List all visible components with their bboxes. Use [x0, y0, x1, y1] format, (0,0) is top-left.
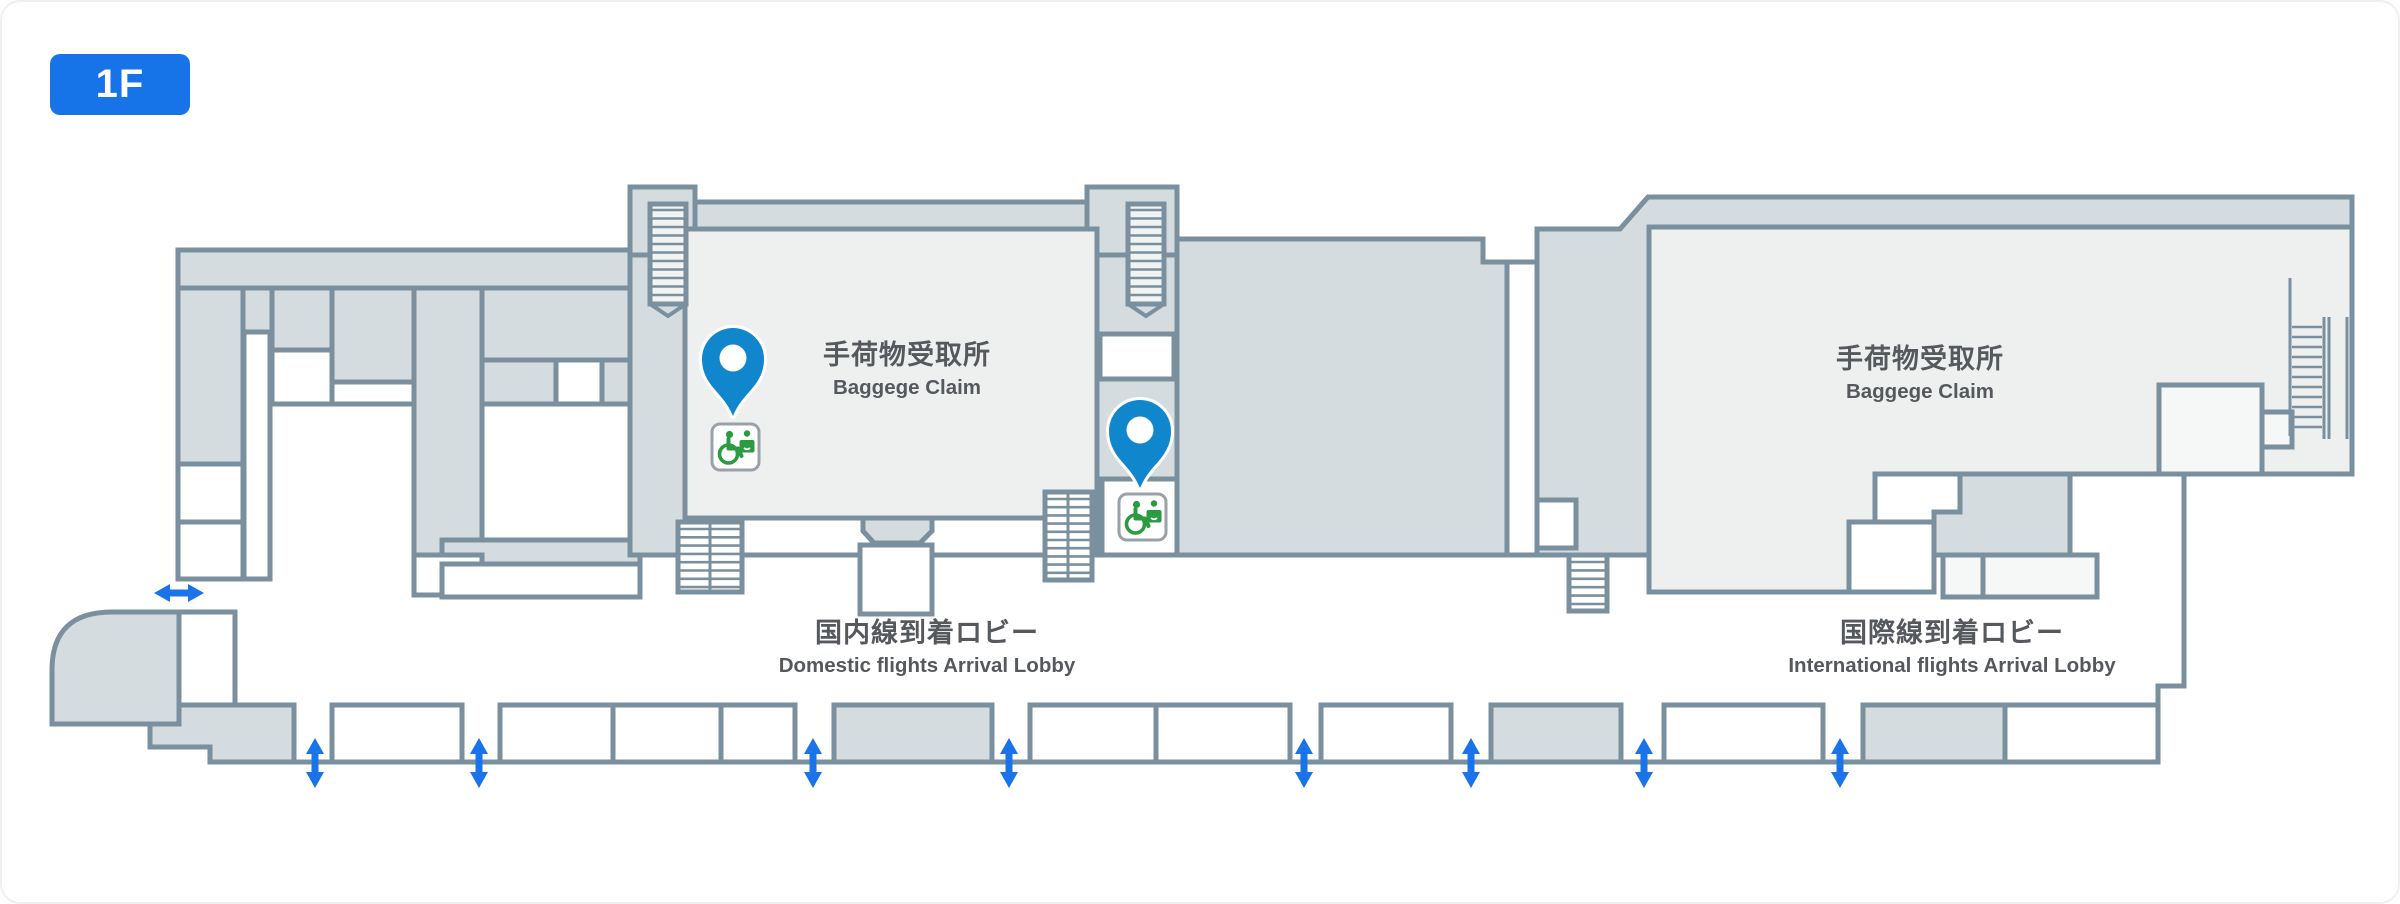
entrance-arrow: [804, 738, 822, 788]
entrance-arrow: [470, 738, 488, 788]
entrance-arrow: [1000, 738, 1018, 788]
entrance-arrow: [1295, 738, 1313, 788]
stair-rungs: [652, 210, 2322, 604]
label-domestic-arrival-lobby: 国内線到着ロビー Domestic flights Arrival Lobby: [779, 616, 1076, 680]
label-en: Domestic flights Arrival Lobby: [779, 652, 1076, 680]
label-en: Baggege Claim: [1836, 378, 2004, 406]
entrance-arrow: [306, 738, 324, 788]
entrance-arrow: [1462, 738, 1480, 788]
location-pin-accessible-toilet-2[interactable]: [1109, 400, 1171, 488]
map-markers: [2, 2, 2400, 904]
label-international-arrival-lobby: 国際線到着ロビー International flights Arrival L…: [1788, 616, 2115, 680]
label-en: Baggege Claim: [823, 374, 991, 402]
label-jp: 手荷物受取所: [1836, 342, 2004, 376]
entrance-arrow: [1831, 738, 1849, 788]
floor-map-page: 1F 手荷物受取所 Baggege Claim 手荷物受取所 Baggege C…: [0, 0, 2400, 904]
entrance-arrow: [154, 584, 204, 602]
accessible-toilet-icon: [1119, 494, 1166, 540]
label-jp: 国内線到着ロビー: [779, 616, 1076, 650]
entrance-arrow: [1635, 738, 1653, 788]
location-pin-accessible-toilet-1[interactable]: [702, 328, 764, 416]
label-international-baggage-claim: 手荷物受取所 Baggege Claim: [1836, 342, 2004, 406]
label-en: International flights Arrival Lobby: [1788, 652, 2115, 680]
floor-selector-badge[interactable]: 1F: [50, 54, 190, 115]
accessible-toilet-icon: [712, 424, 759, 470]
label-jp: 手荷物受取所: [823, 338, 991, 372]
label-jp: 国際線到着ロビー: [1788, 616, 2115, 650]
label-domestic-baggage-claim: 手荷物受取所 Baggege Claim: [823, 338, 991, 402]
